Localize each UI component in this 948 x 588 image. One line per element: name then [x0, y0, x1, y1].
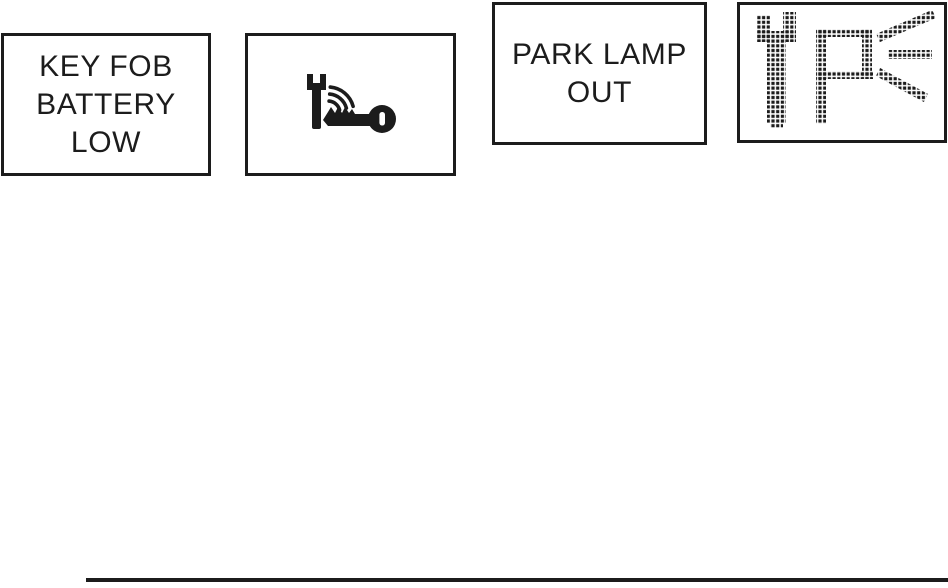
message-line: LOW [71, 124, 141, 162]
key-fob-symbol-box [245, 33, 456, 176]
message-line: OUT [567, 74, 632, 112]
wrench-key-signal-icon [301, 67, 401, 142]
key-fob-battery-low-message-box: KEY FOB BATTERY LOW [1, 33, 211, 176]
park-lamp-out-message-box: PARK LAMP OUT [492, 2, 707, 145]
footer-rule [86, 578, 948, 582]
manual-page: KEY FOB BATTERY LOW P [0, 0, 948, 588]
message-line: KEY FOB [39, 48, 173, 86]
wrench-park-lamp-rays-dot-matrix-icon [752, 11, 932, 134]
message-line: PARK LAMP [512, 36, 687, 74]
park-lamp-symbol-box [737, 2, 947, 143]
message-line: BATTERY [36, 86, 176, 124]
